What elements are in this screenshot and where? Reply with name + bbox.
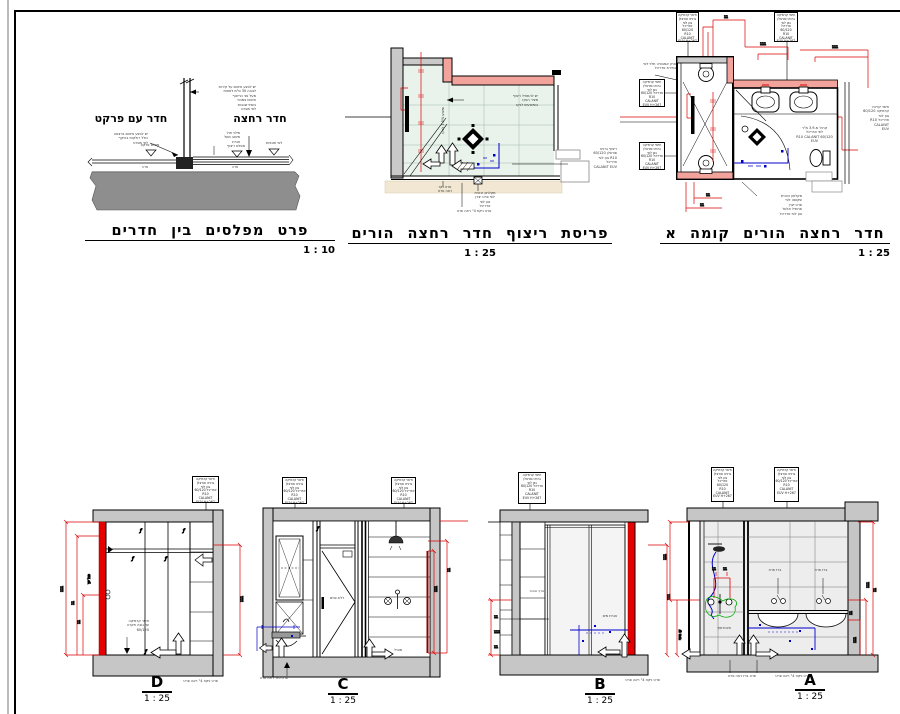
svg-text:11: 11 [723,567,727,571]
screed-label-left: מדה [135,165,155,169]
detail-scale: 1 : 10 [85,245,355,256]
drawing-sheet: 11 111 111 11 11 [0,0,900,714]
elevation-c-label: C 1 : 25 [313,674,373,706]
level-label-tiles: מפלס ריצוף [216,144,256,148]
detail-title: פרט מפלסים בין חדרים [85,223,335,241]
elevation-c-letter: C [328,675,357,695]
plan-note-shower: מקלחון זכוכית שקופה לפי פרט יצרן פרופיל … [752,194,802,216]
svg-text:קו חיפוי: קו חיפוי [678,629,682,640]
elev-d-note: חיפוי קרמיקה עד גובה תקרה 60/120 [115,619,149,632]
svg-text:11: 11 [873,588,877,592]
svg-text:111: 111 [866,582,870,588]
svg-text:111: 111 [434,586,438,592]
svg-text:11: 11 [494,645,498,649]
elevation-a-label: A 1 : 25 [780,670,840,702]
elev-a-caption-note-1: פרט ברז ראה פרט [698,674,756,678]
tiling-note-bottom: פרט ניקוז 4" ראה פרט [444,209,504,213]
spec-box-elev-b: חיפוי קרמיקה גרניט פורצלן גוון לפי אדריכ… [518,472,546,504]
linework-layer: 11 111 111 11 11 [0,0,900,714]
room-label-parquet: חדר עם פרקט [92,112,170,125]
spec-box-elev-c1: חיפוי קרמיקה גרניט פורצלן גוון לפי אדריכ… [282,477,307,504]
elev-c-caption-note: פרט כיור ראה פרט [236,676,288,680]
svg-text:11: 11 [71,601,75,605]
svg-text:11: 11 [712,567,716,571]
elevation-a-letter: A [795,671,825,691]
plan-title: חדר רחצה הורים קומה א [660,226,890,244]
elev-a-faucet-note-2: ברז פרח [806,568,836,572]
elevation-d-scale: 1 : 25 [127,694,187,704]
tiling-note-slope: שיפוע 1.5% לנקז [441,107,445,145]
elevation-b-label: B 1 : 25 [570,674,630,706]
svg-text:111: 111 [494,630,500,634]
tiling-note-right: ריצוף גרניט פורצלן 60/120 R10 גוון לפי א… [569,147,617,169]
elev-c-door-note: דלת פנים [326,596,348,600]
room-label-bathroom: חדר רחצה [230,112,290,125]
level-label-plans: לפי תוכניות [254,141,294,145]
svg-text:11: 11 [494,615,498,619]
svg-text:11: 11 [706,193,710,197]
plan-scale: 1 : 25 [660,248,900,259]
svg-text:11: 11 [700,203,704,207]
elevation-a-drawing: 11 11 111 11 111 111 11 קו חיפוי [663,502,878,673]
svg-text:11: 11 [77,620,81,624]
elev-b-pipe-note: צנרת מים [595,614,617,618]
plan-spec-center: קרמ' מ-3.9 מ"ר לפי אדריכל 60/120 R10 CAL… [793,126,836,144]
spec-box-elev-d: חיפוי קרמיקה גרניט פורצלן גוון לפי אדריכ… [192,476,219,503]
spec-box-plan-3: חיפוי קרמיקה גרניט פורצלן גוון לפי אדריכ… [639,79,665,107]
detail-note-right: יש לבצע איטום על קירות לגובה 30 ס"מ לפחו… [198,85,256,111]
bathroom-plan-drawing: 11 111 111 11 11 [620,15,868,212]
tiling-plan-drawing [345,48,589,207]
svg-text:11: 11 [447,568,451,572]
svg-text:111: 111 [832,45,838,49]
elevation-d-drawing: 111 11 11 111 פנל עץ ƒ ƒ ƒ ƒ ƒ [60,503,244,676]
elev-a-faucet-note-1: ברז פרח [760,568,790,572]
elevation-a-scale: 1 : 25 [780,692,840,702]
spec-box-plan-1: חיפוי קרמיקה גרניט פורצלן גוון לפי אדריכ… [676,12,699,42]
elevation-d-letter: D [142,673,172,693]
tiling-note-shower: מקלחון זכוכית לפי פרט יצרן גוון לפי אדרי… [460,191,510,209]
svg-text:111: 111 [240,596,244,602]
spec-box-plan-2: חיפוי קרמיקה גרניט פורצלן גוון לפי אדריכ… [774,12,798,42]
screed-label-right: מדה [225,165,245,169]
svg-text:111: 111 [760,42,766,46]
plan-note-cabinet: ארון אמבטיה תלוי לפי בחירת אדריכל [614,62,676,71]
spec-box-plan-4: חיפוי קרמיקה גרניט פורצלן גוון לפי אדריכ… [639,142,665,170]
plan-note-right: חיפוי קירות קרמיקה 60/120 גוון לפי אדריכ… [849,105,889,131]
tiling-note-drain: פרט נקז ראה פרט [426,185,464,194]
svg-text:11: 11 [849,611,853,615]
elevation-c-scale: 1 : 25 [313,696,373,706]
elevation-c-drawing: 111 11 ƒ [257,504,468,677]
level-label-parquet: מפלס פרקט [130,143,170,147]
svg-text:פנל עץ: פנל עץ [87,574,91,584]
elev-c-arrow-note: מוביל [394,648,418,652]
svg-text:111: 111 [60,586,64,592]
elevation-d-label: D 1 : 25 [127,672,187,704]
elevation-b-letter: B [585,675,614,695]
elev-a-mixer-note: אינטרפוץ [703,626,731,630]
svg-text:111: 111 [663,554,667,560]
svg-text:111: 111 [853,637,857,643]
tiling-title: פריסת ריצוף חדר רחצה הורים [348,226,612,244]
tiling-scale: 1 : 25 [348,248,612,259]
elev-b-shelf-note: מדף זכוכית [520,590,544,594]
spec-box-elev-c2: חיפוי קרמיקה גרניט פורצלן גוון לפי אדריכ… [391,477,416,504]
detail-note-mid: מילוי חול מיוצב מעל צנרת [196,131,240,144]
elevation-b-drawing: 11 111 11 111 [488,504,671,675]
spec-box-elev-a1: חיפוי קרמיקה גרניט פורצלן גוון לפי אדריכ… [711,467,734,502]
spec-box-elev-a2: חיפוי קרמיקה גרניט פורצלן גוון לפי אדריכ… [774,467,799,502]
svg-text:11: 11 [724,15,728,19]
tiling-note-center: יש להתחיל ריצוף מציר הנקז בשיפועים לנקז [466,94,538,107]
elevation-b-scale: 1 : 25 [570,696,630,706]
